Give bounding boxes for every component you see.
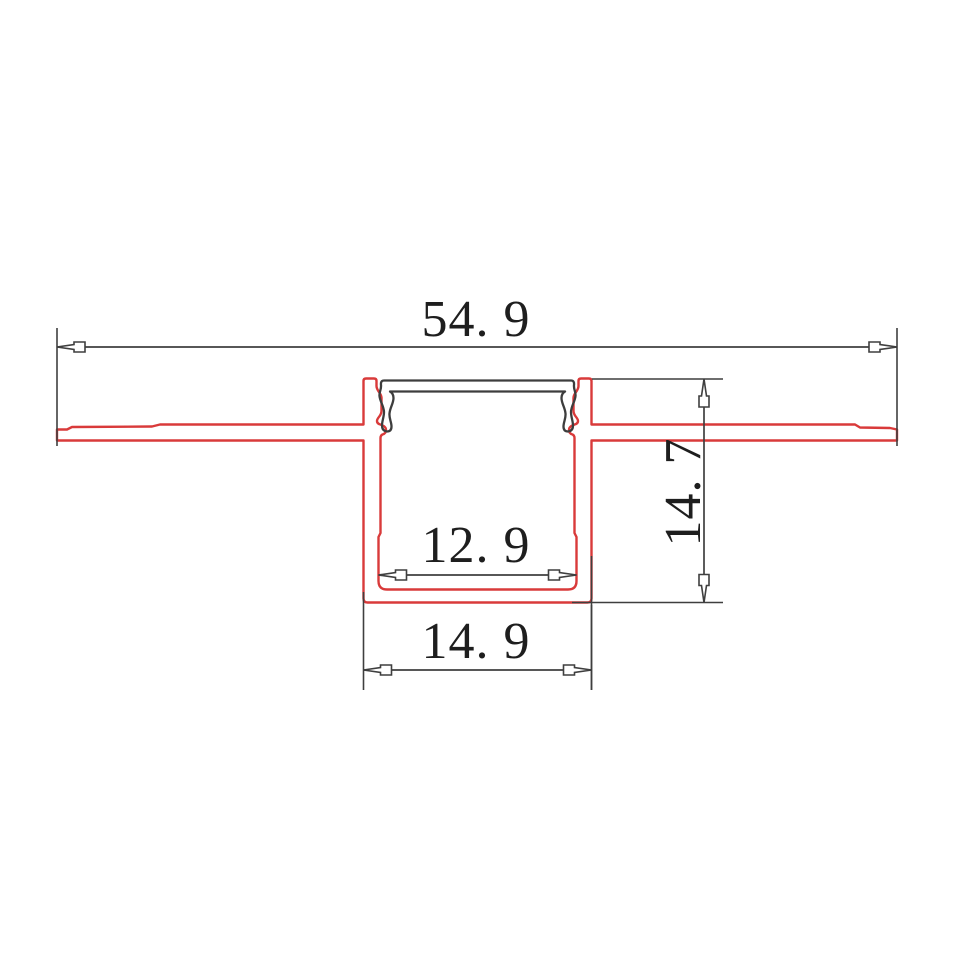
arrowhead-left-icon	[364, 665, 392, 675]
arrowhead-right-icon	[549, 570, 577, 580]
arrowhead-right-icon	[564, 665, 592, 675]
overall-height-label: 14. 7	[655, 438, 712, 547]
arrowhead-left-icon	[379, 570, 407, 580]
arrowhead-left-icon	[57, 342, 85, 352]
drawing-canvas: 54. 9 14. 7 12. 9 14. 9	[0, 0, 970, 971]
dimension-channel-inner-width: 12. 9	[379, 517, 577, 580]
diffuser-cover-outline	[379, 381, 575, 432]
arrowhead-down-icon	[699, 575, 709, 603]
dimension-overall-width: 54. 9	[57, 291, 897, 446]
dimension-channel-outer-width: 14. 9	[364, 592, 592, 690]
arrowhead-up-icon	[699, 379, 709, 407]
channel-outer-width-label: 14. 9	[422, 613, 531, 670]
profile-cross-section-drawing: 54. 9 14. 7 12. 9 14. 9	[0, 0, 970, 971]
channel-inner-width-label: 12. 9	[422, 517, 531, 574]
overall-width-label: 54. 9	[422, 291, 531, 348]
arrowhead-right-icon	[869, 342, 897, 352]
